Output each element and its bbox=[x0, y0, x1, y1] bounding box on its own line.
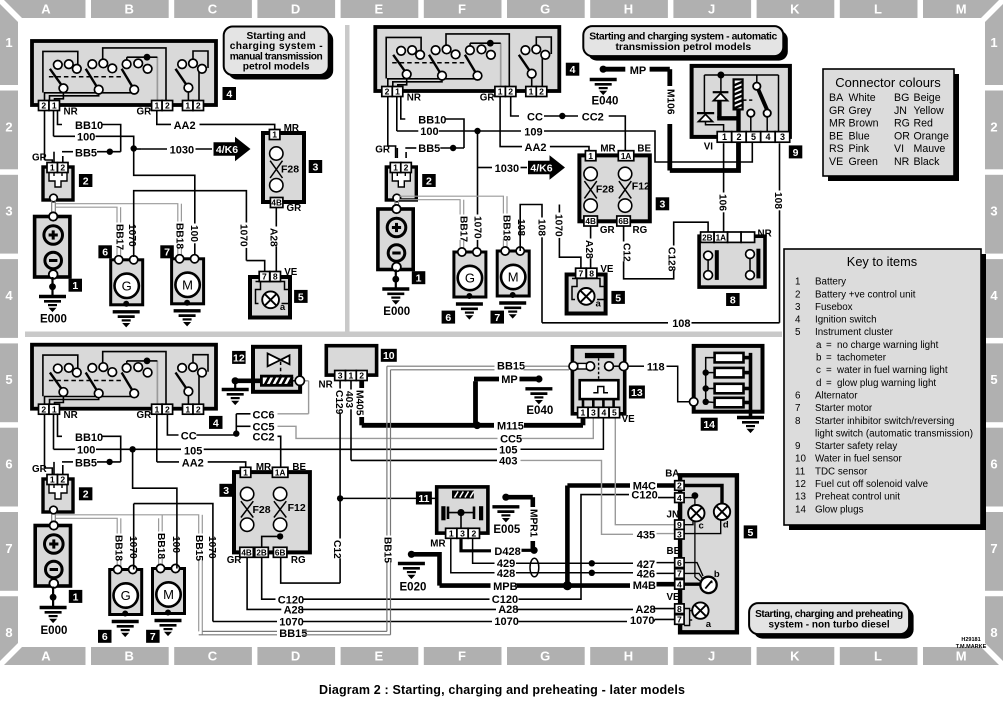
svg-text:BE: BE bbox=[292, 462, 306, 473]
svg-text:1: 1 bbox=[50, 475, 55, 485]
svg-text:6B: 6B bbox=[275, 548, 286, 557]
svg-text:1070: 1070 bbox=[126, 224, 137, 247]
svg-text:GR: GR bbox=[375, 145, 390, 156]
svg-text:1: 1 bbox=[498, 87, 503, 97]
svg-text:5: 5 bbox=[612, 408, 617, 418]
svg-text:GR: GR bbox=[137, 107, 152, 118]
svg-text:F: F bbox=[458, 649, 466, 664]
svg-text:no charge warning light: no charge warning light bbox=[837, 340, 939, 351]
svg-text:2: 2 bbox=[165, 101, 170, 111]
svg-text:1: 1 bbox=[50, 163, 55, 173]
svg-text:BA: BA bbox=[829, 92, 844, 104]
svg-text:Green: Green bbox=[849, 156, 879, 168]
svg-text:1: 1 bbox=[795, 277, 800, 288]
svg-text:Preheat control unit: Preheat control unit bbox=[815, 492, 900, 503]
svg-text:NR: NR bbox=[319, 380, 333, 391]
svg-text:2: 2 bbox=[990, 119, 997, 134]
svg-text:JN: JN bbox=[667, 509, 680, 520]
svg-text:E: E bbox=[374, 2, 383, 17]
svg-text:E040: E040 bbox=[526, 405, 553, 417]
svg-text:7: 7 bbox=[5, 541, 12, 556]
svg-text:1: 1 bbox=[349, 371, 354, 381]
svg-text:L: L bbox=[874, 2, 882, 17]
svg-text:c: c bbox=[816, 365, 821, 376]
svg-text:4: 4 bbox=[570, 64, 576, 76]
svg-text:12: 12 bbox=[795, 479, 806, 490]
svg-text:4: 4 bbox=[765, 132, 770, 142]
svg-text:4B: 4B bbox=[585, 217, 596, 226]
svg-text:BB5: BB5 bbox=[75, 148, 97, 160]
svg-text:100: 100 bbox=[420, 126, 438, 138]
svg-text:100: 100 bbox=[188, 225, 199, 242]
svg-text:E040: E040 bbox=[592, 96, 619, 108]
svg-text:M: M bbox=[182, 277, 193, 292]
svg-text:8: 8 bbox=[990, 625, 997, 640]
svg-text:2: 2 bbox=[196, 101, 201, 111]
svg-text:2: 2 bbox=[83, 175, 89, 187]
svg-text:GR: GR bbox=[287, 203, 302, 214]
svg-text:108: 108 bbox=[535, 219, 546, 236]
svg-text:CC2: CC2 bbox=[582, 111, 604, 123]
svg-text:M: M bbox=[508, 270, 519, 285]
svg-text:7: 7 bbox=[795, 403, 800, 414]
svg-text:Key to items: Key to items bbox=[847, 254, 917, 269]
svg-text:Battery +ve control unit: Battery +ve control unit bbox=[815, 289, 916, 300]
svg-text:CC2: CC2 bbox=[253, 431, 275, 443]
svg-text:9: 9 bbox=[795, 441, 800, 452]
svg-text:1070: 1070 bbox=[206, 536, 217, 559]
svg-text:6: 6 bbox=[102, 247, 108, 259]
svg-text:4: 4 bbox=[213, 417, 219, 429]
svg-text:NR: NR bbox=[758, 229, 772, 240]
svg-text:1: 1 bbox=[73, 591, 79, 603]
svg-text:7: 7 bbox=[262, 272, 267, 282]
svg-text:Fuel cut off solenoid valve: Fuel cut off solenoid valve bbox=[815, 479, 929, 490]
svg-text:8: 8 bbox=[677, 604, 682, 614]
svg-text:2: 2 bbox=[385, 87, 390, 97]
svg-text:403: 403 bbox=[499, 456, 517, 468]
svg-text:F12: F12 bbox=[632, 181, 650, 193]
svg-text:BB10: BB10 bbox=[75, 120, 103, 132]
svg-text:9: 9 bbox=[793, 147, 799, 159]
svg-text:2: 2 bbox=[41, 101, 46, 111]
svg-text:1: 1 bbox=[5, 35, 12, 50]
svg-text:1070: 1070 bbox=[472, 216, 483, 239]
svg-text:Mauve: Mauve bbox=[914, 143, 946, 155]
svg-text:BB15: BB15 bbox=[381, 537, 392, 563]
svg-text:C129: C129 bbox=[333, 390, 344, 415]
svg-text:Starter safety relay: Starter safety relay bbox=[815, 441, 897, 452]
svg-text:6: 6 bbox=[5, 457, 12, 472]
svg-text:13: 13 bbox=[795, 492, 806, 503]
svg-text:BB5: BB5 bbox=[418, 143, 440, 155]
svg-text:6: 6 bbox=[795, 390, 801, 401]
svg-text:3: 3 bbox=[795, 302, 801, 313]
svg-text:VE: VE bbox=[600, 264, 614, 275]
svg-text:b: b bbox=[816, 353, 822, 364]
svg-text:E000: E000 bbox=[383, 306, 410, 318]
svg-text:RG: RG bbox=[291, 555, 306, 566]
svg-text:3: 3 bbox=[223, 485, 229, 497]
svg-text:4: 4 bbox=[677, 493, 682, 503]
svg-text:C12: C12 bbox=[621, 243, 632, 262]
svg-text:6: 6 bbox=[102, 631, 108, 643]
svg-text:VE: VE bbox=[622, 414, 636, 425]
svg-text:d: d bbox=[723, 520, 729, 531]
svg-text:4: 4 bbox=[601, 408, 606, 418]
svg-text:MR: MR bbox=[256, 462, 271, 473]
svg-text:2: 2 bbox=[736, 132, 741, 142]
svg-text:a: a bbox=[280, 302, 286, 313]
svg-text:4: 4 bbox=[5, 288, 13, 303]
svg-text:J: J bbox=[708, 2, 715, 17]
svg-text:2: 2 bbox=[471, 528, 476, 538]
svg-text:glow plug warning light: glow plug warning light bbox=[837, 378, 936, 389]
svg-text:7: 7 bbox=[494, 312, 500, 324]
svg-text:G: G bbox=[465, 271, 475, 286]
svg-text:2: 2 bbox=[60, 475, 65, 485]
svg-text:1A: 1A bbox=[621, 152, 632, 161]
svg-text:7: 7 bbox=[990, 541, 997, 556]
svg-text:1: 1 bbox=[722, 132, 727, 142]
svg-text:1: 1 bbox=[52, 101, 57, 111]
svg-text:8: 8 bbox=[795, 416, 801, 427]
svg-text:NR: NR bbox=[64, 410, 78, 421]
svg-text:Instrument cluster: Instrument cluster bbox=[815, 327, 894, 338]
svg-text:GR: GR bbox=[600, 225, 615, 236]
svg-text:105: 105 bbox=[184, 445, 202, 457]
svg-text:A28: A28 bbox=[498, 604, 518, 616]
svg-text:GR: GR bbox=[480, 93, 495, 104]
svg-text:petrol models: petrol models bbox=[243, 62, 310, 73]
svg-text:11: 11 bbox=[795, 466, 805, 477]
svg-text:1030: 1030 bbox=[495, 163, 519, 175]
svg-text:2: 2 bbox=[359, 371, 364, 381]
svg-text:BE: BE bbox=[637, 144, 651, 155]
svg-text:5: 5 bbox=[615, 292, 621, 304]
svg-text:5: 5 bbox=[990, 372, 997, 387]
svg-text:Connector colours: Connector colours bbox=[835, 75, 941, 90]
svg-text:a: a bbox=[706, 619, 712, 630]
svg-text:BB18: BB18 bbox=[155, 533, 166, 559]
svg-text:Glow plugs: Glow plugs bbox=[815, 504, 864, 515]
svg-text:2: 2 bbox=[795, 289, 800, 300]
svg-text:106: 106 bbox=[717, 194, 728, 211]
svg-text:2: 2 bbox=[165, 404, 170, 414]
svg-text:H: H bbox=[624, 649, 633, 664]
svg-text:BA: BA bbox=[665, 469, 679, 480]
svg-text:M: M bbox=[163, 587, 174, 602]
svg-text:8: 8 bbox=[589, 268, 594, 278]
svg-text:d: d bbox=[816, 378, 821, 389]
svg-text:8: 8 bbox=[273, 272, 278, 282]
svg-text:TDC sensor: TDC sensor bbox=[815, 466, 868, 477]
svg-text:11: 11 bbox=[418, 493, 429, 505]
svg-text:MR: MR bbox=[284, 123, 299, 134]
svg-text:1070: 1070 bbox=[279, 616, 303, 628]
svg-text:7: 7 bbox=[677, 615, 682, 625]
svg-text:118: 118 bbox=[647, 361, 665, 373]
svg-text:1: 1 bbox=[154, 101, 159, 111]
svg-text:OR: OR bbox=[894, 130, 910, 142]
svg-text:Grey: Grey bbox=[849, 105, 873, 117]
svg-text:NR: NR bbox=[407, 93, 421, 104]
svg-text:K: K bbox=[790, 649, 800, 664]
svg-text:GR: GR bbox=[829, 105, 845, 117]
svg-text:G: G bbox=[540, 649, 550, 664]
svg-text:Starter inhibitor switch/rever: Starter inhibitor switch/reversing bbox=[815, 416, 954, 427]
svg-text:1A: 1A bbox=[716, 233, 727, 242]
svg-text:1: 1 bbox=[52, 404, 57, 414]
svg-text:VI: VI bbox=[894, 143, 904, 155]
svg-text:100: 100 bbox=[170, 536, 181, 553]
svg-text:M: M bbox=[956, 649, 967, 664]
svg-text:BB17: BB17 bbox=[113, 224, 124, 250]
svg-text:3: 3 bbox=[5, 204, 12, 219]
svg-text:M405: M405 bbox=[354, 390, 365, 416]
svg-text:403: 403 bbox=[343, 391, 354, 408]
svg-text:1: 1 bbox=[580, 408, 585, 418]
svg-text:108: 108 bbox=[672, 318, 690, 330]
svg-text:MP: MP bbox=[630, 65, 647, 77]
svg-text:1: 1 bbox=[185, 404, 190, 414]
svg-text:MP: MP bbox=[501, 374, 518, 386]
svg-text:4B: 4B bbox=[271, 199, 282, 208]
svg-text:GR: GR bbox=[227, 555, 242, 566]
svg-text:12: 12 bbox=[233, 352, 245, 364]
svg-text:5: 5 bbox=[748, 527, 754, 539]
svg-text:BB15: BB15 bbox=[279, 628, 307, 640]
svg-text:T.M.MARKE: T.M.MARKE bbox=[956, 644, 987, 650]
svg-text:3: 3 bbox=[780, 132, 785, 142]
svg-text:1030: 1030 bbox=[170, 145, 194, 157]
svg-text:Blue: Blue bbox=[849, 130, 870, 142]
svg-text:5: 5 bbox=[298, 291, 304, 303]
svg-text:426: 426 bbox=[637, 569, 655, 581]
svg-text:transmission petrol models: transmission petrol models bbox=[615, 42, 751, 53]
svg-text:VE: VE bbox=[284, 267, 298, 278]
svg-text:1A: 1A bbox=[275, 468, 286, 477]
svg-text:1070: 1070 bbox=[127, 536, 138, 559]
svg-text:7: 7 bbox=[150, 631, 156, 643]
svg-text:NR: NR bbox=[64, 107, 78, 118]
svg-text:F28: F28 bbox=[281, 164, 299, 176]
svg-text:Alternator: Alternator bbox=[815, 390, 858, 401]
svg-text:a: a bbox=[596, 299, 602, 310]
svg-text:H29181: H29181 bbox=[961, 637, 980, 643]
svg-text:2: 2 bbox=[41, 404, 46, 414]
svg-text:1: 1 bbox=[185, 101, 190, 111]
svg-text:F28: F28 bbox=[253, 504, 271, 516]
svg-text:VE: VE bbox=[667, 592, 681, 603]
svg-text:=: = bbox=[826, 353, 832, 364]
svg-text:6: 6 bbox=[677, 558, 682, 568]
svg-text:BB17: BB17 bbox=[457, 216, 468, 242]
svg-text:CC: CC bbox=[527, 111, 543, 123]
svg-text:GR: GR bbox=[32, 464, 47, 475]
svg-text:2: 2 bbox=[677, 481, 682, 491]
svg-text:Battery: Battery bbox=[815, 277, 846, 288]
svg-text:A28: A28 bbox=[284, 604, 304, 616]
svg-text:F28: F28 bbox=[596, 184, 614, 196]
svg-text:C12: C12 bbox=[331, 540, 342, 559]
svg-text:E005: E005 bbox=[493, 524, 520, 536]
svg-text:M4C: M4C bbox=[633, 481, 656, 493]
svg-text:BB15: BB15 bbox=[497, 360, 525, 372]
svg-text:2: 2 bbox=[5, 119, 12, 134]
svg-text:J: J bbox=[708, 649, 715, 664]
svg-text:=: = bbox=[826, 365, 832, 376]
svg-text:C128: C128 bbox=[666, 247, 677, 272]
svg-text:5: 5 bbox=[5, 372, 12, 387]
svg-text:105: 105 bbox=[499, 444, 517, 456]
svg-text:2: 2 bbox=[404, 163, 409, 173]
svg-text:Yellow: Yellow bbox=[914, 105, 945, 117]
svg-text:2: 2 bbox=[508, 87, 513, 97]
svg-text:D: D bbox=[291, 2, 300, 17]
svg-text:1: 1 bbox=[990, 35, 997, 50]
svg-text:7: 7 bbox=[578, 268, 583, 278]
svg-text:4B: 4B bbox=[241, 548, 252, 557]
svg-text:100: 100 bbox=[77, 132, 95, 144]
svg-text:AA2: AA2 bbox=[174, 120, 196, 132]
svg-text:Black: Black bbox=[914, 156, 941, 168]
svg-text:BB10: BB10 bbox=[75, 432, 103, 444]
svg-text:G: G bbox=[121, 588, 131, 603]
svg-text:BB10: BB10 bbox=[418, 115, 446, 127]
svg-text:E020: E020 bbox=[400, 582, 427, 594]
svg-text:2: 2 bbox=[196, 404, 201, 414]
svg-text:=: = bbox=[826, 378, 832, 389]
svg-text:tachometer: tachometer bbox=[837, 353, 887, 364]
svg-text:F: F bbox=[458, 2, 466, 17]
svg-text:3: 3 bbox=[313, 161, 319, 173]
svg-text:JN: JN bbox=[894, 105, 907, 117]
svg-text:BE: BE bbox=[667, 546, 681, 557]
svg-text:435: 435 bbox=[637, 529, 655, 541]
svg-text:1: 1 bbox=[243, 467, 248, 477]
svg-text:3: 3 bbox=[591, 408, 596, 418]
svg-text:GR: GR bbox=[137, 410, 152, 421]
svg-text:B: B bbox=[125, 649, 134, 664]
svg-text:RG: RG bbox=[633, 225, 648, 236]
svg-text:4: 4 bbox=[677, 579, 682, 589]
svg-text:Starting, charging and preheat: Starting, charging and preheating bbox=[755, 609, 903, 620]
svg-text:system - non turbo diesel: system - non turbo diesel bbox=[769, 619, 890, 630]
svg-text:8: 8 bbox=[730, 294, 736, 306]
svg-text:BG: BG bbox=[894, 92, 909, 104]
svg-text:M115: M115 bbox=[497, 420, 524, 432]
svg-text:D428: D428 bbox=[494, 546, 520, 558]
svg-text:2: 2 bbox=[539, 87, 544, 97]
svg-text:5: 5 bbox=[751, 132, 756, 142]
svg-text:3: 3 bbox=[677, 529, 682, 539]
svg-text:a: a bbox=[816, 340, 822, 351]
svg-text:109: 109 bbox=[524, 126, 542, 138]
svg-text:1: 1 bbox=[449, 528, 454, 538]
svg-text:A28: A28 bbox=[635, 604, 655, 616]
svg-text:428: 428 bbox=[497, 568, 515, 580]
svg-text:1: 1 bbox=[272, 130, 277, 140]
svg-text:BB18: BB18 bbox=[501, 215, 512, 241]
svg-text:A28: A28 bbox=[267, 228, 278, 247]
svg-text:14: 14 bbox=[703, 419, 715, 431]
svg-text:1070: 1070 bbox=[237, 224, 248, 247]
svg-text:Red: Red bbox=[914, 118, 934, 130]
svg-text:Starter motor: Starter motor bbox=[815, 403, 873, 414]
svg-text:4: 4 bbox=[795, 315, 801, 326]
svg-text:C: C bbox=[208, 2, 218, 17]
svg-text:D: D bbox=[291, 649, 300, 664]
svg-text:1: 1 bbox=[416, 273, 422, 285]
svg-text:RS: RS bbox=[829, 143, 844, 155]
svg-text:10: 10 bbox=[795, 454, 806, 465]
svg-text:8: 8 bbox=[5, 625, 12, 640]
svg-text:VI: VI bbox=[704, 142, 714, 153]
svg-text:Diagram 2 : Starting, charging: Diagram 2 : Starting, charging and prehe… bbox=[319, 683, 685, 697]
svg-text:M106: M106 bbox=[665, 89, 676, 115]
svg-text:2: 2 bbox=[426, 175, 432, 187]
svg-text:3: 3 bbox=[660, 199, 666, 211]
svg-text:2B: 2B bbox=[256, 548, 267, 557]
svg-text:2: 2 bbox=[60, 163, 65, 173]
svg-text:4/K6: 4/K6 bbox=[216, 144, 238, 156]
svg-text:3: 3 bbox=[460, 528, 465, 538]
svg-text:BB5: BB5 bbox=[75, 458, 97, 470]
svg-text:1: 1 bbox=[393, 163, 398, 173]
svg-text:1070: 1070 bbox=[630, 615, 654, 627]
svg-text:G: G bbox=[122, 278, 132, 293]
svg-text:E000: E000 bbox=[41, 625, 68, 637]
svg-text:Orange: Orange bbox=[914, 130, 949, 142]
svg-text:Pink: Pink bbox=[849, 143, 870, 155]
svg-text:G: G bbox=[540, 2, 550, 17]
svg-text:BB18: BB18 bbox=[113, 535, 124, 561]
svg-text:K: K bbox=[790, 2, 800, 17]
svg-text:Water in fuel sensor: Water in fuel sensor bbox=[815, 454, 902, 465]
svg-text:M4B: M4B bbox=[633, 580, 656, 592]
svg-text:RG: RG bbox=[894, 118, 910, 130]
svg-text:MR: MR bbox=[600, 144, 615, 155]
svg-text:A28: A28 bbox=[583, 240, 594, 259]
svg-text:A: A bbox=[41, 2, 51, 17]
svg-text:BB18: BB18 bbox=[173, 223, 184, 249]
svg-text:water in fuel warning light: water in fuel warning light bbox=[836, 365, 948, 376]
svg-text:3: 3 bbox=[338, 371, 343, 381]
svg-text:1: 1 bbox=[395, 87, 400, 97]
svg-text:3: 3 bbox=[990, 204, 997, 219]
svg-text:M: M bbox=[956, 2, 967, 17]
svg-text:NR: NR bbox=[894, 156, 910, 168]
svg-text:A: A bbox=[41, 649, 51, 664]
svg-text:CC: CC bbox=[181, 430, 197, 442]
svg-text:4: 4 bbox=[990, 288, 998, 303]
svg-text:MPR1: MPR1 bbox=[527, 509, 538, 538]
svg-text:2B: 2B bbox=[702, 233, 713, 242]
svg-text:6: 6 bbox=[445, 312, 451, 324]
svg-text:BB15: BB15 bbox=[193, 535, 204, 561]
svg-text:1: 1 bbox=[72, 280, 78, 292]
svg-text:C: C bbox=[208, 649, 218, 664]
svg-text:1: 1 bbox=[154, 404, 159, 414]
svg-text:GR: GR bbox=[32, 153, 47, 164]
svg-text:6: 6 bbox=[990, 457, 997, 472]
svg-text:Ignition switch: Ignition switch bbox=[815, 315, 877, 326]
svg-text:1070: 1070 bbox=[553, 214, 564, 237]
svg-text:CC6: CC6 bbox=[253, 409, 275, 421]
svg-text:VE: VE bbox=[829, 156, 843, 168]
svg-text:14: 14 bbox=[795, 504, 806, 515]
